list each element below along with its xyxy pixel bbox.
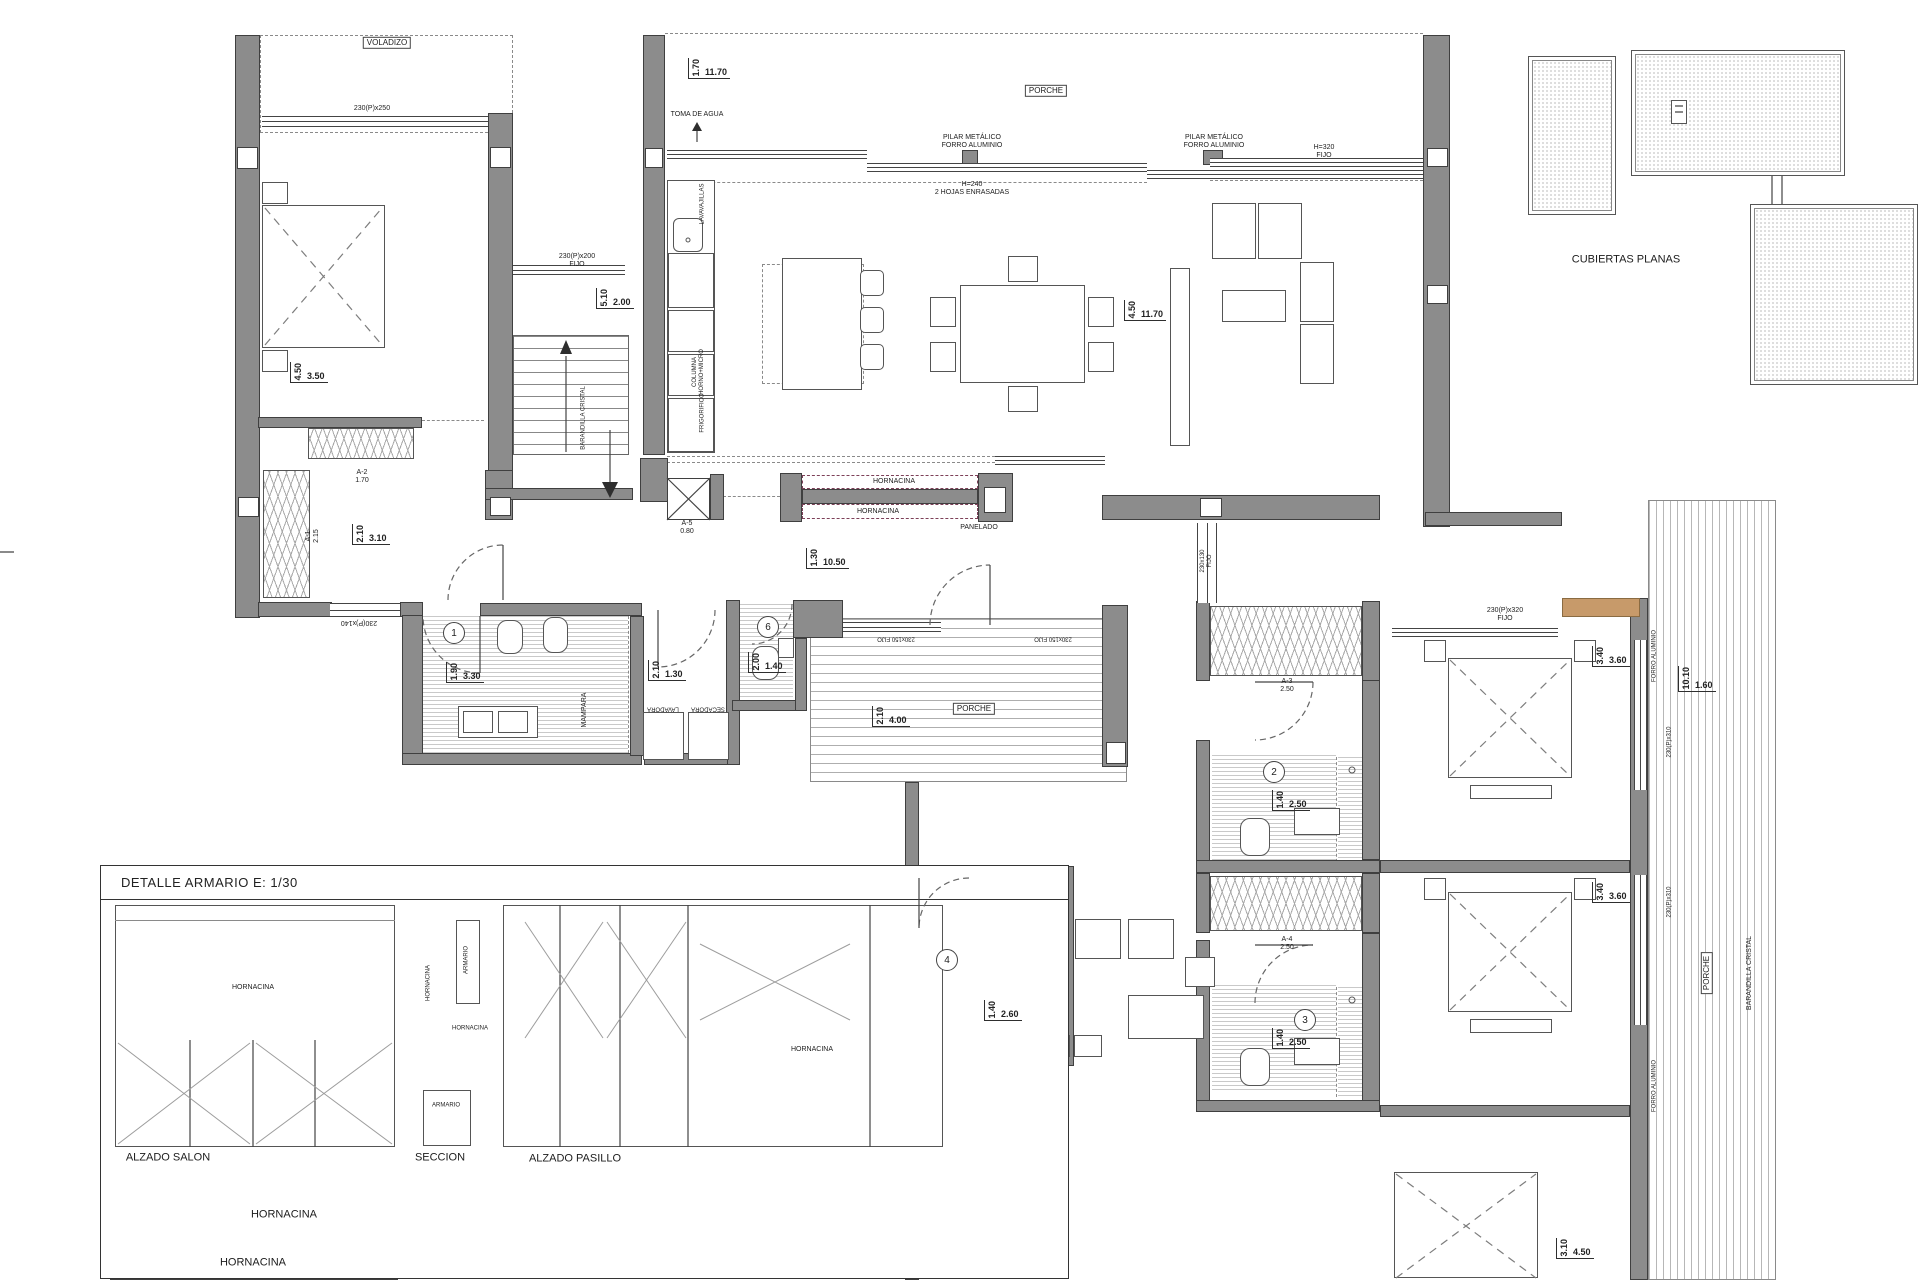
plan-label: ALZADO PASILLO: [529, 1153, 621, 1166]
dimension-label: 10.101.60: [1678, 666, 1716, 692]
plan-label: ARMARIO: [432, 1103, 460, 1110]
plan-label: A-5 0.80: [680, 520, 694, 536]
dimension-label: 1.7011.70: [688, 58, 730, 79]
plan-label: 230(P)x250: [354, 105, 390, 113]
room-number: 6: [757, 616, 779, 638]
plan-label: FRIGORIFICO: [700, 393, 707, 432]
plan-label: PORCHE: [953, 703, 995, 715]
dimension-label: 2.104.00: [872, 706, 910, 727]
plan-label: A-3 2.50: [1280, 678, 1294, 694]
plan-label: A-2 1.70: [355, 469, 369, 485]
plan-label: LAVADORA: [647, 705, 679, 712]
dimension-label: 1.402.50: [1272, 1028, 1310, 1049]
plan-label: PANELADO: [960, 524, 998, 532]
dimension-label: 3.403.60: [1592, 646, 1630, 667]
dimension-label: 1.402.50: [1272, 790, 1310, 811]
plan-label: H=320 FIJO: [1314, 144, 1335, 160]
dimension-label: 1.402.60: [984, 1000, 1022, 1021]
fixture-dots: [686, 238, 1355, 1003]
plan-label: HORNACINA: [426, 965, 433, 1001]
plan-label: HORNACINA: [251, 1209, 317, 1222]
dimension-label: 1.903.30: [446, 662, 484, 683]
plan-label: PILAR METÁLICO FORRO ALUMINIO: [1184, 134, 1245, 150]
dimension-label: 2.001.40: [748, 652, 786, 673]
plan-label: BARANDILLA CRISTAL: [1746, 936, 1754, 1010]
plan-label: HORNACINA: [791, 1046, 833, 1054]
plan-label: SECCION: [415, 1152, 465, 1165]
room-number: 3: [1294, 1009, 1316, 1031]
plan-label: HORNACINA: [452, 1026, 488, 1033]
door-arcs: [423, 545, 1313, 1003]
plan-label: ARMARIO: [464, 946, 471, 974]
plan-label: 230(P)x200 FIJO: [559, 253, 595, 269]
plan-label: 230x150 FIJO: [1034, 635, 1072, 642]
plan-label: ALZADO SALON: [126, 1152, 210, 1165]
dimension-label: 3.403.60: [1592, 882, 1630, 903]
plan-label: PILAR METÁLICO FORRO ALUMINIO: [942, 134, 1003, 150]
plan-label: LAVAVAJILLAS: [700, 184, 707, 225]
room-number: 2: [1263, 761, 1285, 783]
plan-label: 230(P)x140: [341, 618, 377, 626]
plan-label: 230x150 FIJO: [877, 635, 915, 642]
dimension-label: 4.503.50: [290, 362, 328, 383]
dimension-label: 5.102.00: [596, 288, 634, 309]
plan-label: TOMA DE AGUA: [671, 111, 724, 119]
dimension-label: 2.103.10: [352, 524, 390, 545]
plan-label: SECADORA: [691, 705, 725, 712]
dimension-label: 1.3010.50: [806, 548, 849, 569]
dimension-label: 3.104.50: [1556, 1238, 1594, 1259]
floor-plan-sheet: DETALLE ARMARIO E: 1/30: [0, 0, 1920, 1280]
plan-label: H=240 2 HOJAS ENRASADAS: [935, 181, 1009, 197]
plan-label: HORNACINA: [873, 478, 915, 486]
plan-label: FORRO ALUMINIO: [1652, 630, 1659, 682]
plan-label: 230(P)x310: [1667, 726, 1674, 757]
plan-label: VOLADIZO: [363, 37, 411, 49]
dimension-label: 4.5011.70: [1124, 300, 1166, 321]
plan-label: A-4 2.50: [1280, 936, 1294, 952]
plan-label: MAMPARA: [581, 693, 589, 728]
plan-label: PORCHE: [1701, 952, 1713, 994]
room-number: 1: [443, 622, 465, 644]
plan-label: BARANDILLA CRISTAL: [581, 386, 588, 450]
plan-label: HORNACINA: [232, 984, 274, 992]
plan-label: 230(P)x310: [1667, 886, 1674, 917]
bed-x-marks: [265, 208, 1570, 1278]
plan-label: PORCHE: [1025, 85, 1067, 97]
dimension-label: 2.101.30: [648, 660, 686, 681]
plan-label: FORRO ALUMINIO: [1652, 1060, 1659, 1112]
plan-label: 230(P)x320 FIJO: [1487, 607, 1523, 623]
plan-label: HORNACINA: [220, 1257, 286, 1270]
plan-label: 230x130 FIJO: [1200, 549, 1214, 572]
room-number: 4: [936, 949, 958, 971]
plan-label: COLUMNA HORNO+MICRO: [692, 349, 706, 395]
detail-x-marks: [118, 922, 850, 1144]
plan-label: HORNACINA: [857, 508, 899, 516]
plan-label: A-1 2.15: [305, 529, 321, 543]
plan-label: CUBIERTAS PLANAS: [1572, 254, 1680, 267]
